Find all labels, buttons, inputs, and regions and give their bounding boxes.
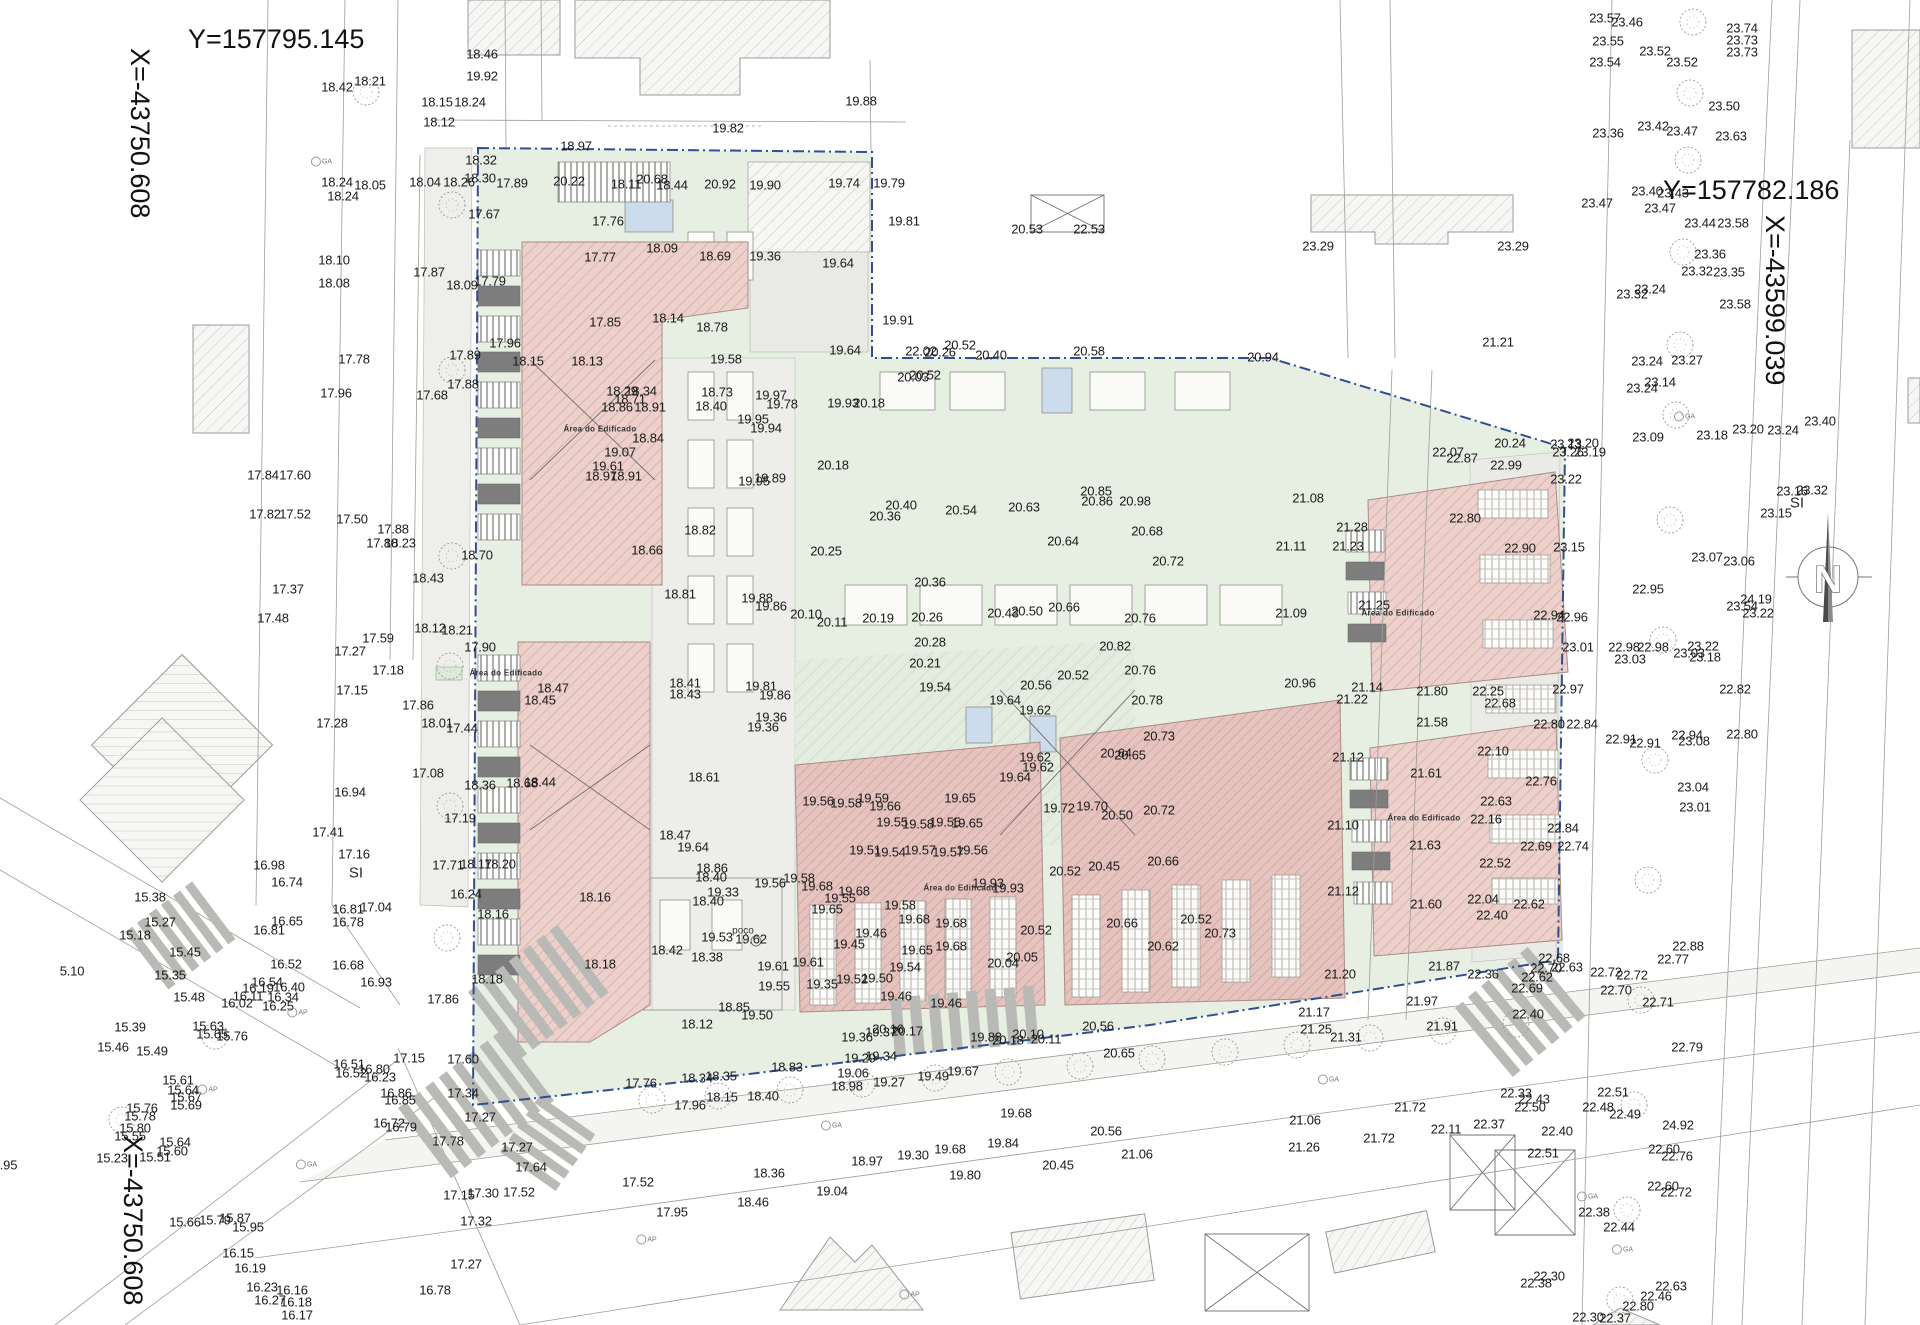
elevation-label: 22.84 — [1547, 822, 1579, 835]
elevation-label: 18.40 — [747, 1090, 779, 1103]
elevation-label: 19.78 — [766, 398, 798, 411]
elevation-label: 23.18 — [1696, 429, 1728, 442]
elevation-label: 22.50 — [1514, 1101, 1546, 1114]
elevation-label: 23.55 — [1592, 35, 1624, 48]
well-label: poço — [732, 926, 754, 937]
elevation-label: 18.15 — [512, 355, 544, 368]
elevation-label: 17.82 — [249, 508, 281, 521]
ga-utility-icon: GA — [322, 159, 332, 166]
elevation-label: 19.36 — [747, 721, 779, 734]
elevation-label: 22.80 — [1622, 1300, 1654, 1313]
elevation-label: 23.01 — [1562, 641, 1594, 654]
elevation-label: 20.66 — [1106, 917, 1138, 930]
elevation-label: 18.21 — [354, 75, 386, 88]
elevation-label: 19.67 — [947, 1065, 979, 1078]
elevation-label: 21.12 — [1327, 885, 1359, 898]
si-label: SI — [349, 865, 363, 882]
elevation-label: 23.09 — [1632, 431, 1664, 444]
elevation-label: 22.69 — [1511, 982, 1543, 995]
elevation-label: 19.91 — [882, 314, 914, 327]
elevation-label: 19.93 — [992, 882, 1024, 895]
elevation-label: 20.28 — [914, 636, 946, 649]
elevation-label: 20.52 — [1057, 669, 1089, 682]
elevation-label: 20.21 — [909, 657, 941, 670]
elevation-label: 15.46 — [97, 1041, 129, 1054]
elevation-label: 19.56 — [802, 795, 834, 808]
ga-utility-icon: GA — [1623, 1247, 1633, 1254]
elevation-label: 17.37 — [272, 583, 304, 596]
ap-utility-icon: AP — [910, 1292, 919, 1299]
elevation-label: 23.58 — [1717, 217, 1749, 230]
elevation-label: 22.77 — [1657, 953, 1689, 966]
elevation-label: 18.82 — [684, 524, 716, 537]
elevation-label: 19.64 — [989, 694, 1021, 707]
elevation-label: 19.27 — [873, 1076, 905, 1089]
elevation-label: 19.65 — [951, 817, 983, 830]
elevation-label: 15.23 — [96, 1152, 128, 1165]
elevation-label: 20.62 — [1147, 940, 1179, 953]
elevation-label: 17.28 — [316, 717, 348, 730]
elevation-label: 22.38 — [1520, 1277, 1552, 1290]
elevation-label: 18.42 — [321, 81, 353, 94]
elevation-label: 20.52 — [1020, 924, 1052, 937]
elevation-label: 18.21 — [441, 624, 473, 637]
elevation-label: 19.07 — [604, 446, 636, 459]
elevation-label: 22.63 — [1480, 795, 1512, 808]
elevation-label: 16.98 — [253, 859, 285, 872]
elevation-label: 18.40 — [695, 400, 727, 413]
elevation-label: 20.50 — [1011, 605, 1043, 618]
elevation-label: 18.10 — [318, 254, 350, 267]
elevation-label: 15.49 — [136, 1045, 168, 1058]
elevation-label: 21.80 — [1416, 685, 1448, 698]
elevation-label: 15.95 — [232, 1221, 264, 1234]
elevation-label: 15.55 — [114, 1130, 146, 1143]
elevation-label: 19.04 — [816, 1185, 848, 1198]
elevation-label: 17.89 — [449, 349, 481, 362]
elevation-label: 23.42 — [1637, 120, 1669, 133]
elevation-label: 23.44 — [1684, 217, 1716, 230]
north-compass-icon: N — [1786, 513, 1872, 622]
elevation-label: 22.70 — [1600, 984, 1632, 997]
elevation-label: 16.52 — [270, 958, 302, 971]
elevation-label: 20.76 — [1124, 664, 1156, 677]
elevation-label: 19.72 — [1043, 802, 1075, 815]
ap-utility-icon: AP — [298, 1010, 307, 1017]
elevation-label: 19.36 — [749, 250, 781, 263]
elevation-label: 18.43 — [412, 572, 444, 585]
elevation-label: 22.95 — [1632, 583, 1664, 596]
elevation-label: 5.10 — [60, 965, 85, 978]
elevation-label: 23.40 — [1804, 415, 1836, 428]
elevation-label: 21.12 — [1332, 751, 1364, 764]
elevation-label: 17.96 — [674, 1099, 706, 1112]
elevation-label: 16.02 — [221, 997, 253, 1010]
elevation-label: 17.78 — [338, 353, 370, 366]
elevation-label: 21.11 — [1276, 540, 1307, 553]
elevation-label: 19.94 — [750, 422, 782, 435]
elevation-label: 18.81 — [664, 588, 696, 601]
elevation-label: 18.15 — [421, 96, 453, 109]
elevation-label: 17.67 — [468, 208, 500, 221]
elevation-label: 20.40 — [975, 349, 1007, 362]
elevation-label: 19.59 — [857, 792, 889, 805]
ga-utility-icon: GA — [1329, 1077, 1339, 1084]
elevation-label: 4.95 — [0, 1159, 17, 1172]
elevation-label: 19.55 — [758, 980, 790, 993]
elevation-label: 22.16 — [1470, 813, 1502, 826]
elevation-label: 22.40 — [1512, 1008, 1544, 1021]
elevation-label: 19.36 — [841, 1031, 873, 1044]
coordinate-label-top-left-x: X=-43750.608 — [124, 48, 155, 218]
elevation-label: 20.73 — [1143, 730, 1175, 743]
elevation-label: 23.08 — [1678, 735, 1710, 748]
elevation-label: 20.56 — [1020, 679, 1052, 692]
elevation-label: 18.47 — [537, 682, 569, 695]
elevation-label: 20.98 — [1119, 495, 1151, 508]
elevation-label: 19.61 — [757, 960, 789, 973]
elevation-label: 16.79 — [385, 1121, 417, 1134]
elevation-label: 18.13 — [571, 355, 603, 368]
elevation-label: 19.46 — [930, 997, 962, 1010]
elevation-label: 22.38 — [1578, 1206, 1610, 1219]
elevation-label: 23.24 — [1634, 283, 1666, 296]
elevation-label: 20.18 — [817, 459, 849, 472]
elevation-label: 16.85 — [384, 1094, 416, 1107]
elevation-label: 17.95 — [656, 1206, 688, 1219]
elevation-label: 18.98 — [831, 1080, 863, 1093]
elevation-label: 18.12 — [681, 1018, 713, 1031]
elevation-label: 23.15 — [1760, 507, 1792, 520]
elevation-label: 18.05 — [354, 179, 386, 192]
elevation-label: 18.15 — [706, 1091, 738, 1104]
elevation-label: 19.92 — [466, 70, 498, 83]
elevation-label: 17.88 — [447, 378, 479, 391]
elevation-label: 23.24 — [1631, 355, 1663, 368]
elevation-label: 22.37 — [1473, 1118, 1505, 1131]
elevation-label: 23.07 — [1691, 551, 1723, 564]
elevation-label: 17.79 — [474, 275, 506, 288]
elevation-label: 18.46 — [737, 1196, 769, 1209]
elevation-label: 17.52 — [622, 1176, 654, 1189]
elevation-label: 20.65 — [1103, 1047, 1135, 1060]
elevation-label: 21.58 — [1416, 716, 1448, 729]
elevation-label: 22.63 — [1551, 961, 1583, 974]
elevation-label: 23.36 — [1592, 127, 1624, 140]
elevation-label: 22.76 — [1661, 1150, 1693, 1163]
elevation-label: 19.68 — [898, 913, 930, 926]
elevation-label: 20.56 — [1090, 1125, 1122, 1138]
elevation-label: 23.47 — [1644, 202, 1676, 215]
elevation-label: 15.39 — [114, 1021, 146, 1034]
elevation-label: 18.04 — [409, 176, 441, 189]
elevation-label: 17.96 — [489, 337, 521, 350]
elevation-label: 18.44 — [656, 179, 688, 192]
elevation-label: 18.43 — [669, 688, 701, 701]
elevation-label: 22.74 — [1557, 840, 1589, 853]
elevation-label: 16.93 — [360, 976, 392, 989]
elevation-label: 20.73 — [1204, 927, 1236, 940]
elevation-label: 23.73 — [1726, 46, 1758, 59]
elevation-label: 22.72 — [1616, 969, 1648, 982]
elevation-label: 17.48 — [257, 612, 289, 625]
elevation-label: 17.27 — [501, 1141, 533, 1154]
elevation-label: 17.34 — [447, 1087, 479, 1100]
elevation-label: 20.36 — [914, 576, 946, 589]
elevation-label: 15.35 — [154, 969, 186, 982]
elevation-label: 21.22 — [1336, 693, 1368, 706]
elevation-label: 23.24 — [1767, 424, 1799, 437]
elevation-label: 21.31 — [1330, 1031, 1362, 1044]
built-area-label: Área do Edificado — [563, 425, 636, 434]
elevation-label: 19.84 — [987, 1137, 1019, 1150]
elevation-label: 20.11 — [817, 616, 848, 629]
elevation-label: 19.74 — [828, 177, 860, 190]
elevation-label: 20.96 — [1284, 677, 1316, 690]
elevation-label: 19.89 — [754, 472, 786, 485]
elevation-label: 19.64 — [822, 257, 854, 270]
elevation-label: 20.53 — [1011, 223, 1043, 236]
elevation-label: 18.24 — [454, 96, 486, 109]
elevation-label: 17.52 — [503, 1186, 535, 1199]
elevation-label: 19.49 — [917, 1070, 949, 1083]
elevation-label: 22.53 — [1073, 223, 1105, 236]
elevation-label: 18.42 — [651, 944, 683, 957]
elevation-label: 22.80 — [1726, 728, 1758, 741]
elevation-label: 19.86 — [755, 600, 787, 613]
elevation-label: 22.84 — [1566, 718, 1598, 731]
elevation-label: 19.58 — [884, 899, 916, 912]
elevation-label: 19.64 — [999, 771, 1031, 784]
elevation-label: 20.26 — [911, 611, 943, 624]
elevation-label: 17.68 — [416, 389, 448, 402]
elevation-label: 20.66 — [1147, 855, 1179, 868]
elevation-label: 17.50 — [336, 513, 368, 526]
elevation-label: 18.24 — [327, 190, 359, 203]
elevation-label: 22.40 — [1476, 909, 1508, 922]
elevation-label: 18.18 — [471, 973, 503, 986]
elevation-label: 18.78 — [696, 321, 728, 334]
elevation-label: 18.73 — [701, 386, 733, 399]
elevation-label: 23.36 — [1694, 248, 1726, 261]
elevation-label: 21.09 — [1275, 607, 1307, 620]
elevation-label: 16.23 — [364, 1071, 396, 1084]
elevation-label: 21.26 — [1288, 1141, 1320, 1154]
elevation-label: 19.65 — [944, 792, 976, 805]
elevation-label: 19.53 — [701, 931, 733, 944]
elevation-label: 21.87 — [1428, 960, 1460, 973]
elevation-label: 21.91 — [1426, 1020, 1458, 1033]
elevation-label: 23.01 — [1679, 801, 1711, 814]
elevation-label: 19.30 — [897, 1149, 929, 1162]
elevation-label: 16.15 — [222, 1247, 254, 1260]
elevation-label: 22.82 — [1719, 683, 1751, 696]
elevation-label: 17.41 — [312, 826, 344, 839]
elevation-label: 18.16 — [477, 908, 509, 921]
ap-utility-icon: AP — [208, 1087, 217, 1094]
elevation-label: 17.32 — [460, 1215, 492, 1228]
elevation-label: 21.21 — [1482, 336, 1514, 349]
elevation-label: 16.78 — [419, 1284, 451, 1297]
elevation-label: 22.97 — [1552, 683, 1584, 696]
built-area-label: Área do Edificado — [469, 669, 542, 678]
elevation-label: 21.60 — [1410, 898, 1442, 911]
elevation-label: 23.50 — [1708, 100, 1740, 113]
elevation-label: 17.59 — [362, 632, 394, 645]
elevation-label: 20.65 — [1114, 749, 1146, 762]
elevation-label: 17.16 — [338, 848, 370, 861]
elevation-label: 22.96 — [1556, 611, 1588, 624]
elevation-label: 18.12 — [423, 116, 455, 129]
elevation-label: 23.63 — [1715, 130, 1747, 143]
elevation-label: 19.55 — [824, 892, 856, 905]
elevation-label: 18.68 — [506, 777, 538, 790]
elevation-label: 21.28 — [1336, 521, 1368, 534]
elevation-label: 17.76 — [625, 1077, 657, 1090]
elevation-label: 17.19 — [444, 812, 476, 825]
elevation-label: 22.44 — [1603, 1221, 1635, 1234]
elevation-label: 20.72 — [1143, 804, 1175, 817]
elevation-label: 19.50 — [861, 972, 893, 985]
elevation-label: 15.69 — [170, 1099, 202, 1112]
elevation-label: 19.54 — [919, 681, 951, 694]
elevation-label: 23.43 — [1657, 187, 1689, 200]
elevation-label: 15.45 — [169, 946, 201, 959]
elevation-label: 22.91 — [1629, 737, 1661, 750]
elevation-label: 22.68 — [1484, 697, 1516, 710]
elevation-label: 15.18 — [119, 929, 151, 942]
elevation-label: 23.15 — [1553, 541, 1585, 554]
elevation-label: 17.27 — [450, 1258, 482, 1271]
elevation-label: 16.78 — [332, 916, 364, 929]
elevation-label: 20.54 — [945, 504, 977, 517]
elevation-label: 19.79 — [873, 177, 905, 190]
built-area-label: Área do Edificado — [923, 884, 996, 893]
elevation-label: 17.87 — [413, 266, 445, 279]
elevation-label: 19.68 — [1000, 1107, 1032, 1120]
elevation-label: 18.18 — [584, 958, 616, 971]
elevation-label: 23.54 — [1589, 56, 1621, 69]
elevation-label: 19.34 — [865, 1050, 897, 1063]
elevation-label: 22.76 — [1525, 775, 1557, 788]
elevation-label: 22.80 — [1449, 512, 1481, 525]
coordinate-label-top-right-y: Y=157782.186 — [1663, 175, 1839, 206]
elevation-label: 23.20 — [1732, 423, 1764, 436]
elevation-label: 24.19 — [1740, 593, 1772, 606]
elevation-label: 24.92 — [1662, 1119, 1694, 1132]
elevation-label: 21.08 — [1292, 492, 1324, 505]
elevation-label: 23.46 — [1611, 16, 1643, 29]
elevation-label: 16.81 — [253, 924, 285, 937]
elevation-label: 22.49 — [1609, 1108, 1641, 1121]
elevation-label: 22.62 — [1513, 898, 1545, 911]
elevation-label: 20.64 — [1047, 535, 1079, 548]
elevation-label: 22.71 — [1642, 996, 1674, 1009]
elevation-label: 19.62 — [1019, 704, 1051, 717]
elevation-label: 22.69 — [1520, 840, 1552, 853]
elevation-label: 23.35 — [1713, 266, 1745, 279]
elevation-label: 18.97 — [560, 140, 592, 153]
elevation-label: 18.91 — [634, 401, 666, 414]
elevation-label: 20.78 — [1131, 694, 1163, 707]
elevation-label: 20.11 — [1031, 1033, 1062, 1046]
built-area-label: Área do Edificado — [1387, 814, 1460, 823]
elevation-label: 19.58 — [710, 353, 742, 366]
elevation-label: 19.90 — [749, 179, 781, 192]
elevation-label: 21.23 — [1332, 540, 1364, 553]
elevation-label: 22.11 — [1431, 1123, 1462, 1136]
elevation-label: 23.04 — [1677, 781, 1709, 794]
elevation-label: 23.52 — [1666, 56, 1698, 69]
elevation-label: 20.52 — [1049, 865, 1081, 878]
elevation-label: 17.85 — [589, 316, 621, 329]
elevation-label: 21.63 — [1409, 839, 1441, 852]
elevation-label: 21.06 — [1289, 1114, 1321, 1127]
elevation-label: 20.17 — [891, 1025, 923, 1038]
elevation-label: 20.56 — [1082, 1020, 1114, 1033]
elevation-label: 17.08 — [412, 767, 444, 780]
elevation-label: 18.84 — [632, 432, 664, 445]
elevation-label: 15.51 — [139, 1151, 171, 1164]
elevation-label: 18.61 — [688, 771, 720, 784]
elevation-label: 19.56 — [754, 877, 786, 890]
elevation-label: 18.08 — [318, 277, 350, 290]
elevation-label: 18.36 — [753, 1167, 785, 1180]
elevation-label: 17.86 — [402, 699, 434, 712]
north-letter: N — [1814, 559, 1841, 601]
elevation-label: 23.22 — [1742, 607, 1774, 620]
elevation-label: 22.52 — [1479, 857, 1511, 870]
elevation-label: 19.81 — [888, 215, 920, 228]
elevation-label: 23.29 — [1302, 240, 1334, 253]
elevation-label: 19.50 — [741, 1009, 773, 1022]
elevation-label: 17.78 — [432, 1135, 464, 1148]
elevation-label: 22.90 — [1504, 542, 1536, 555]
elevation-label: 23.29 — [1497, 240, 1529, 253]
elevation-label: 22.36 — [1467, 968, 1499, 981]
elevation-label: 19.46 — [855, 927, 887, 940]
elevation-label: 17.15 — [336, 684, 368, 697]
elevation-label: 20.63 — [1008, 501, 1040, 514]
elevation-label: 19.64 — [829, 344, 861, 357]
ga-utility-icon: GA — [1685, 414, 1695, 421]
elevation-label: 18.35 — [705, 1070, 737, 1083]
elevation-label: 23.27 — [1671, 354, 1703, 367]
elevation-label: 17.52 — [279, 508, 311, 521]
elevation-label: 22.51 — [1527, 1147, 1559, 1160]
elevation-label: 22.79 — [1671, 1041, 1703, 1054]
elevation-label: 20.82 — [1099, 640, 1131, 653]
elevation-label: 17.90 — [464, 641, 496, 654]
coordinate-label-top-left-y: Y=157795.145 — [188, 24, 364, 55]
elevation-label: 17.27 — [464, 1111, 496, 1124]
elevation-label: 21.10 — [1327, 819, 1359, 832]
site-plan-canvas: N Y=157795.145 X=-43750.608 Y=157782.186… — [0, 0, 1920, 1325]
elevation-label: 21.25 — [1300, 1023, 1332, 1036]
elevation-label: 20.68 — [1131, 525, 1163, 538]
elevation-label: 18.69 — [699, 250, 731, 263]
elevation-label: 19.46 — [880, 990, 912, 1003]
elevation-label: 15.48 — [173, 991, 205, 1004]
elevation-label: 17.60 — [447, 1053, 479, 1066]
elevation-label: 18.23 — [384, 537, 416, 550]
elevation-label: 17.89 — [496, 177, 528, 190]
elevation-label: 20.92 — [704, 178, 736, 191]
elevation-label: 18.86 — [601, 401, 633, 414]
elevation-label: 20.52 — [1180, 913, 1212, 926]
elevation-label: 21.72 — [1394, 1101, 1426, 1114]
ga-utility-icon: GA — [1588, 1194, 1598, 1201]
